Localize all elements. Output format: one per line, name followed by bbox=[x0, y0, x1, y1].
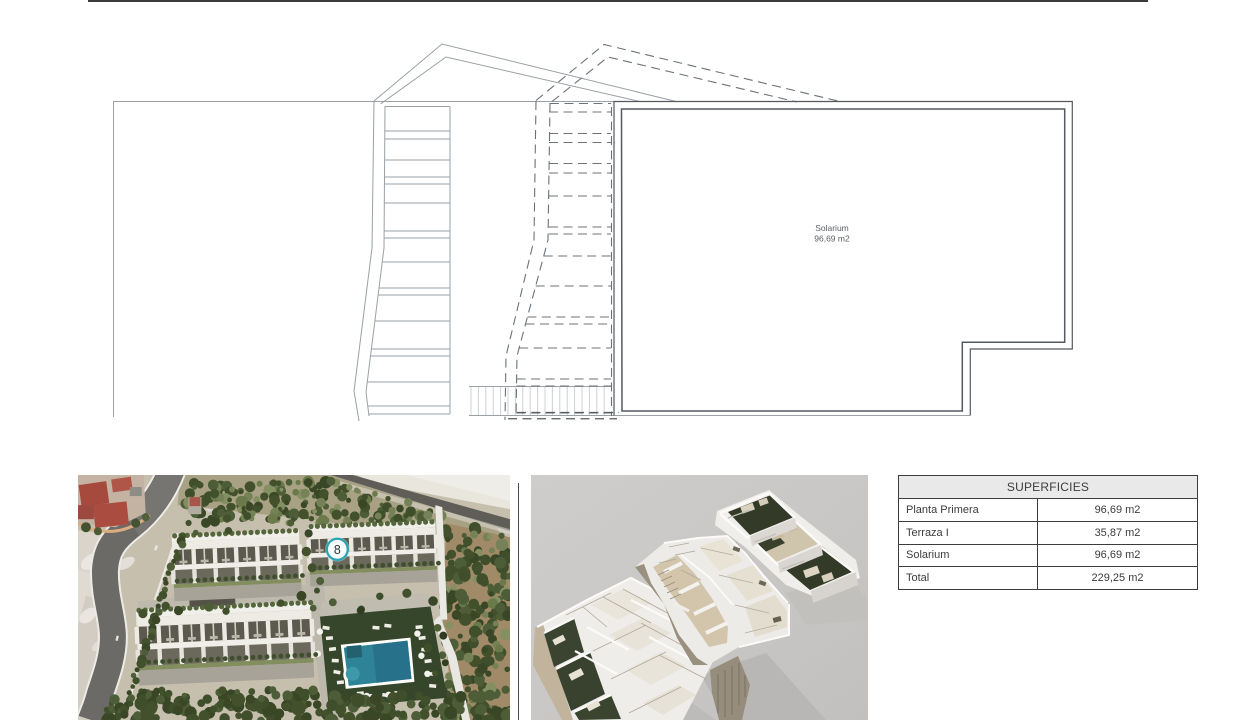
svg-text:8: 8 bbox=[334, 543, 341, 557]
svg-text:Solarium: Solarium bbox=[815, 223, 849, 233]
svg-text:96,69 m2: 96,69 m2 bbox=[814, 234, 850, 244]
